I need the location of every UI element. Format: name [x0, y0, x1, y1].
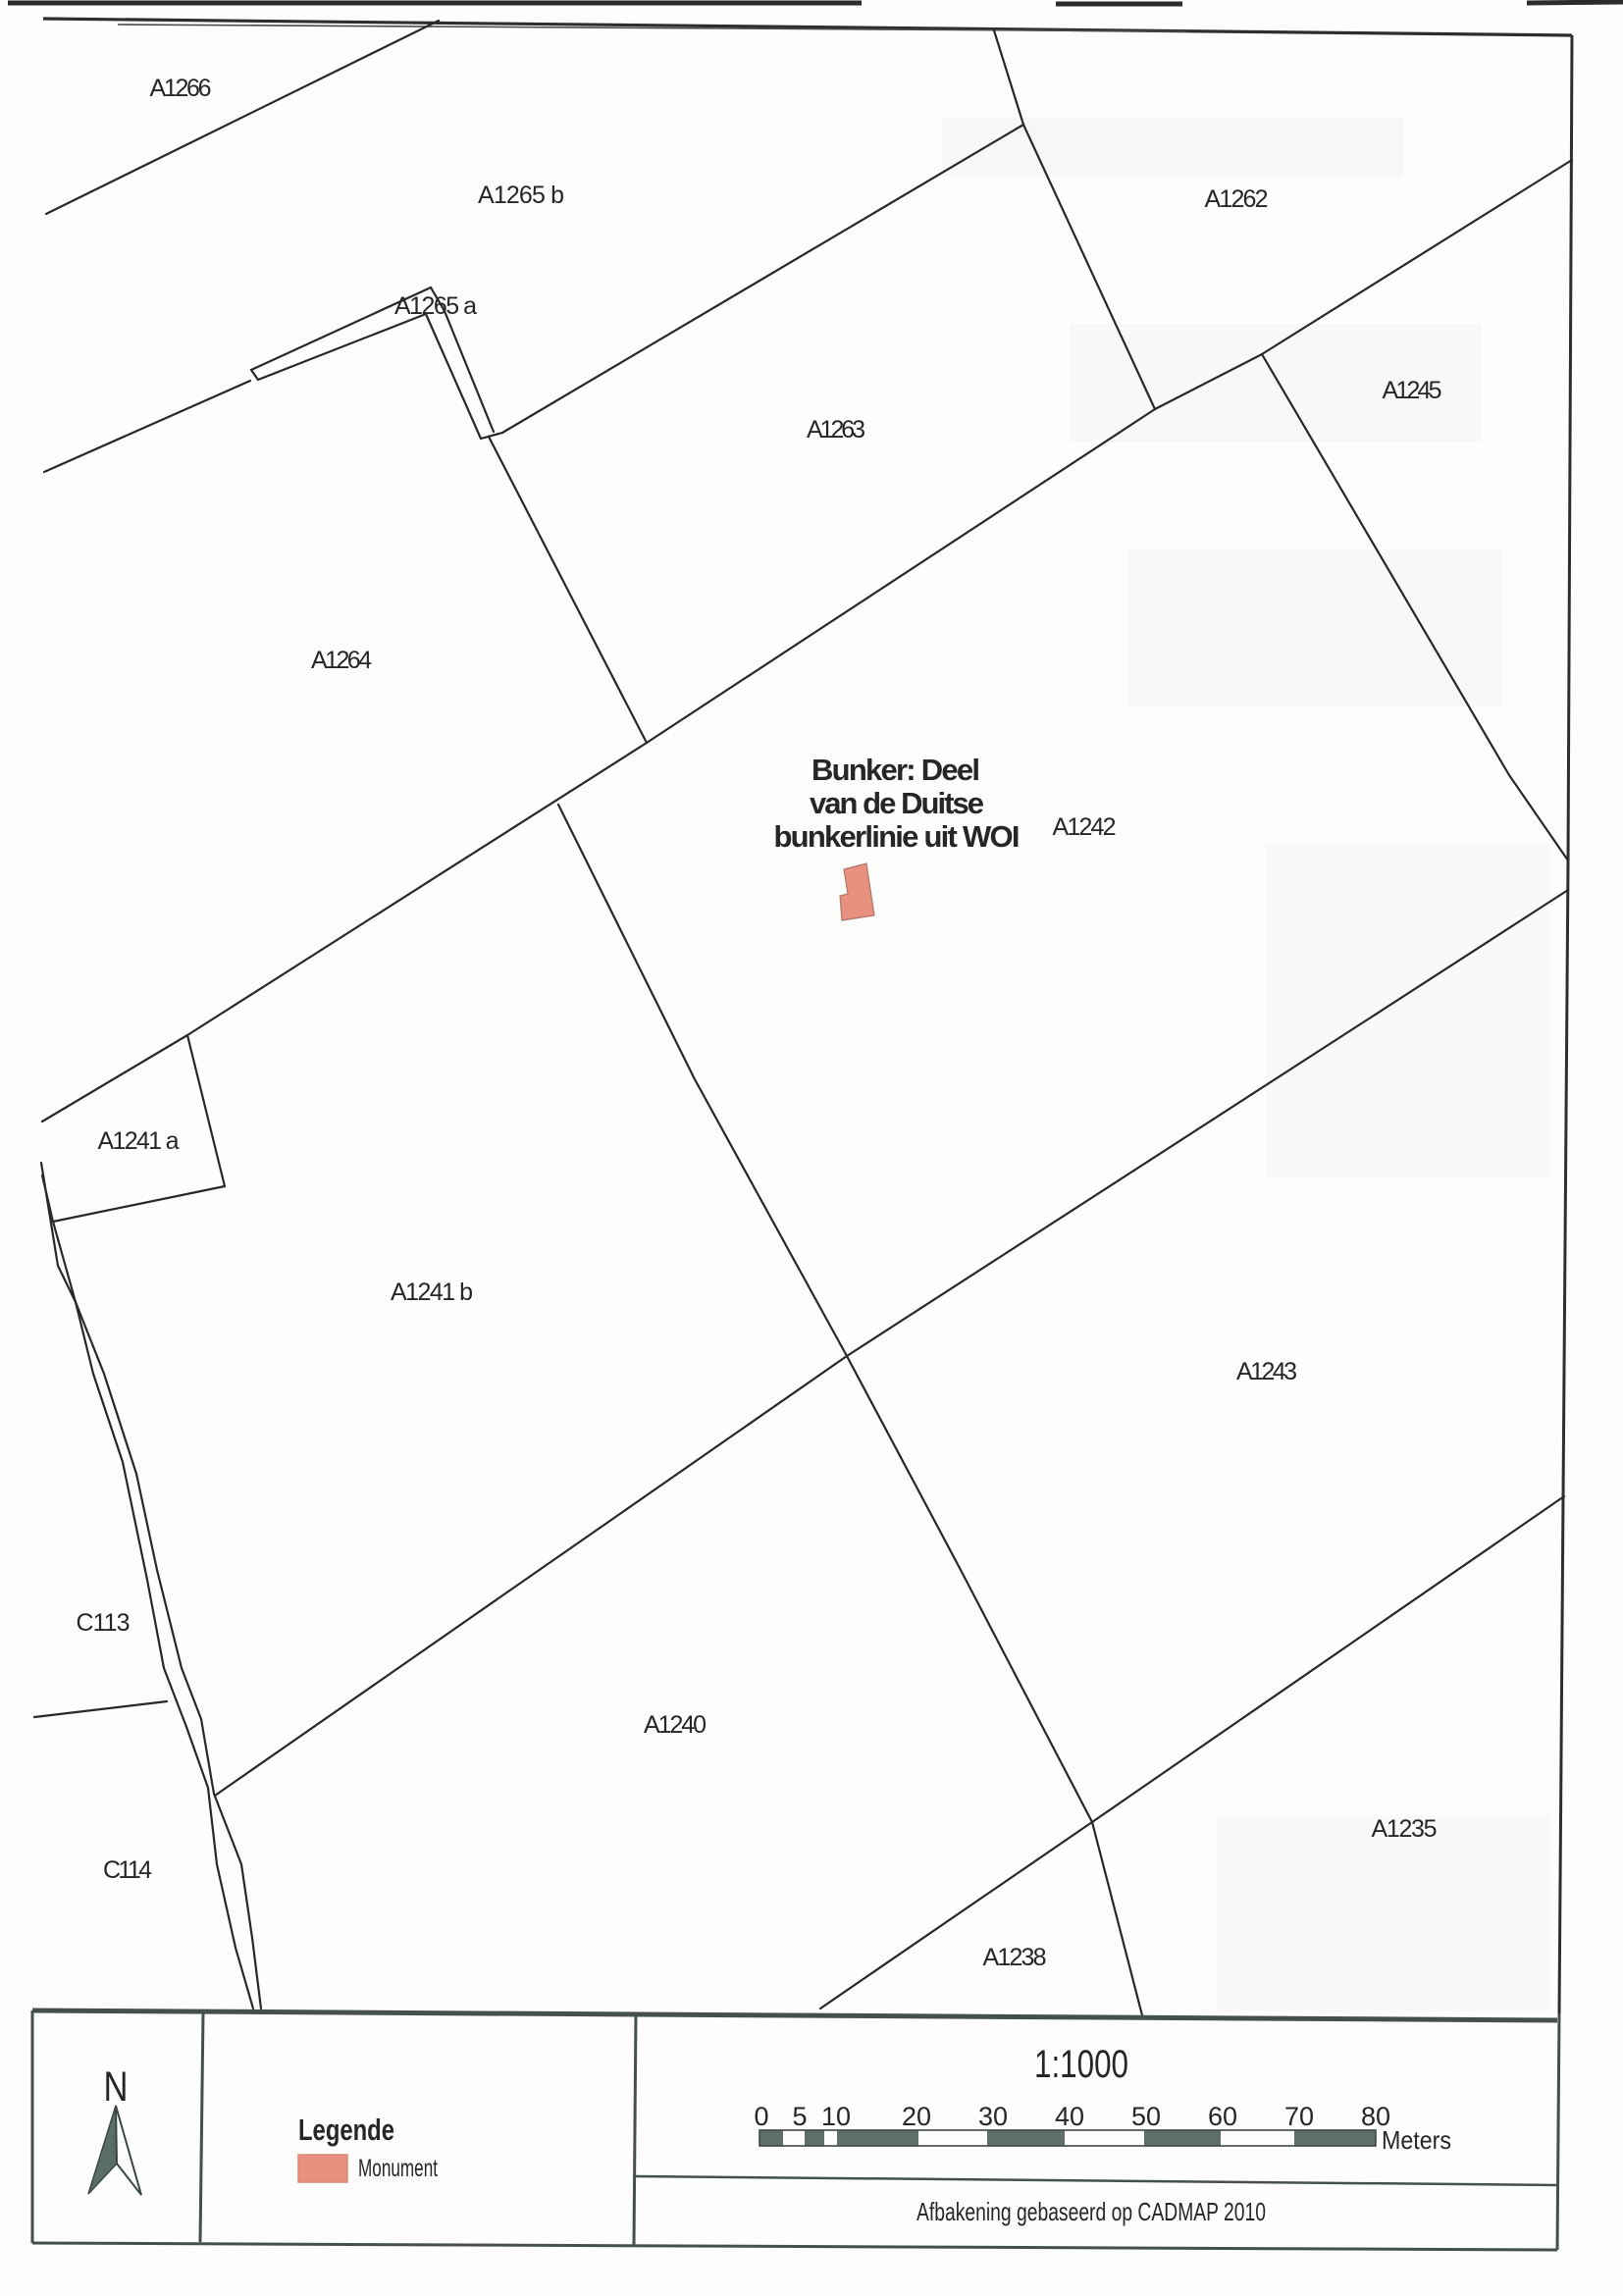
svg-text:Legende: Legende: [298, 2113, 394, 2147]
svg-text:20: 20: [902, 2102, 931, 2131]
svg-text:Meters: Meters: [1382, 2125, 1451, 2155]
svg-text:C113: C113: [77, 1609, 131, 1637]
svg-text:1:1000: 1:1000: [1034, 2043, 1128, 2086]
svg-text:Afbakening gebaseerd op CADMAP: Afbakening gebaseerd op CADMAP 2010: [916, 2197, 1266, 2226]
svg-text:10: 10: [821, 2102, 851, 2131]
svg-text:van de Duitse: van de Duitse: [810, 786, 984, 820]
svg-text:C114: C114: [103, 1856, 152, 1884]
svg-text:A1265 b: A1265 b: [478, 182, 564, 209]
svg-text:40: 40: [1055, 2102, 1084, 2131]
svg-text:50: 50: [1131, 2102, 1161, 2131]
svg-text:A1235: A1235: [1372, 1815, 1438, 1843]
svg-text:60: 60: [1208, 2102, 1237, 2131]
svg-text:A1243: A1243: [1236, 1358, 1297, 1385]
svg-text:0: 0: [754, 2102, 768, 2131]
svg-text:A1263: A1263: [807, 416, 865, 444]
svg-text:Bunker: Deel: Bunker: Deel: [811, 753, 980, 787]
svg-text:A1265 a: A1265 a: [394, 292, 477, 320]
svg-text:A1241 a: A1241 a: [98, 1127, 180, 1155]
svg-text:5: 5: [792, 2102, 807, 2131]
svg-text:A1242: A1242: [1053, 813, 1117, 841]
svg-text:A1262: A1262: [1205, 185, 1269, 213]
svg-text:bunkerlinie uit WOI: bunkerlinie uit WOI: [774, 819, 1021, 854]
svg-text:N: N: [104, 2063, 129, 2111]
svg-text:A1240: A1240: [644, 1711, 707, 1739]
svg-text:A1266: A1266: [150, 75, 212, 102]
svg-text:70: 70: [1284, 2102, 1314, 2131]
svg-text:A1238: A1238: [983, 1944, 1047, 1971]
svg-text:30: 30: [978, 2102, 1008, 2131]
svg-text:A1241 b: A1241 b: [391, 1278, 473, 1306]
svg-text:A1264: A1264: [311, 647, 372, 674]
svg-text:Monument: Monument: [358, 2155, 438, 2182]
svg-text:A1245: A1245: [1383, 377, 1442, 404]
